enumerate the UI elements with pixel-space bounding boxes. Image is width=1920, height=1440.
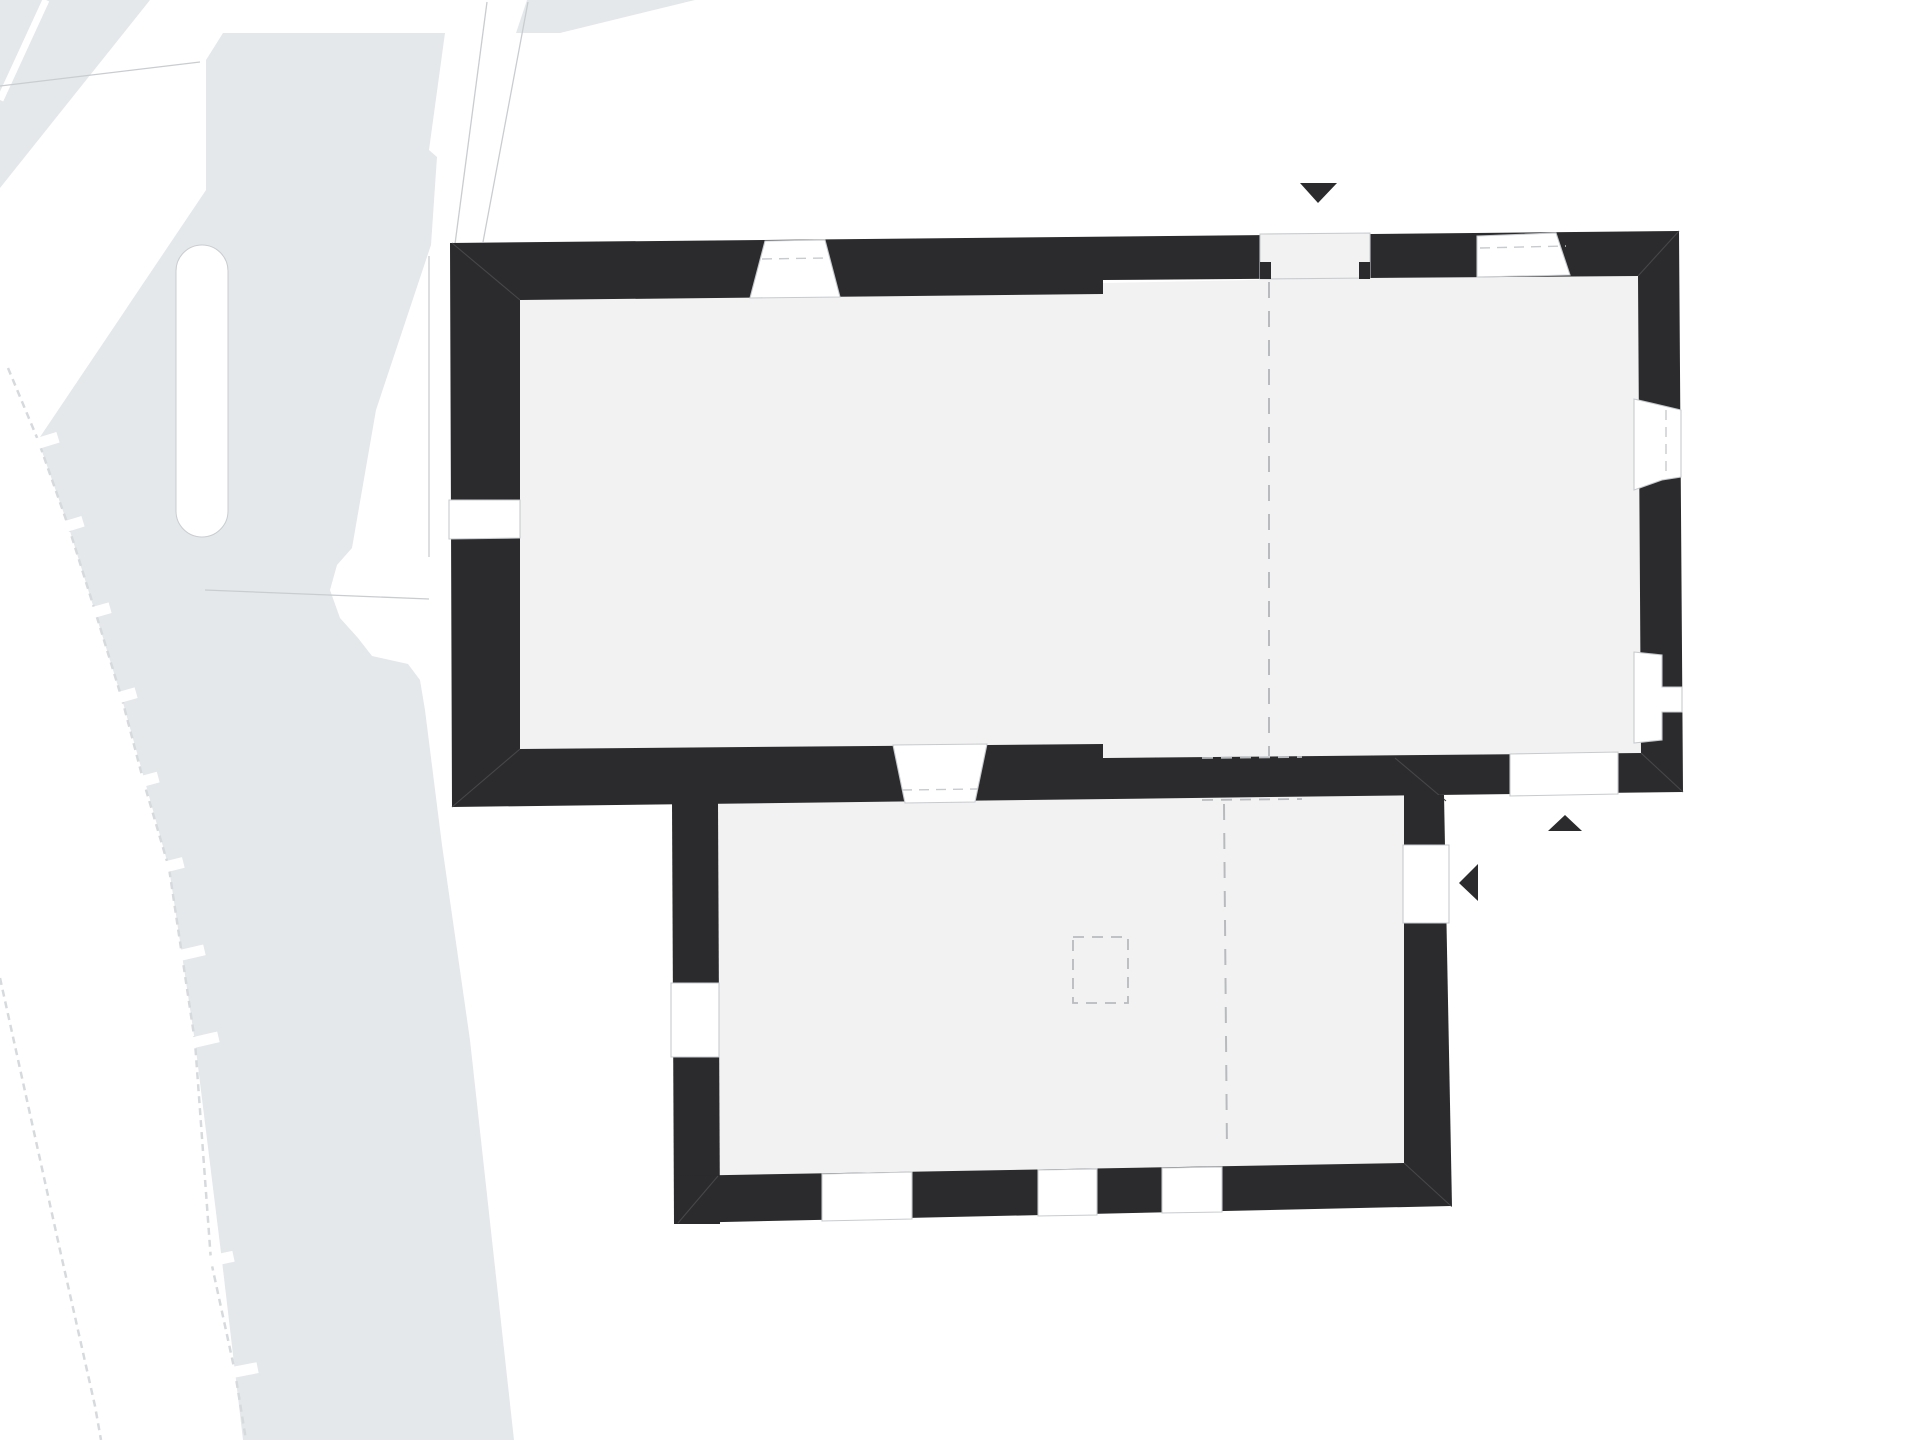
window-left xyxy=(449,500,520,539)
street-edge-line-1 xyxy=(455,2,487,244)
dead-end-lane xyxy=(176,245,228,537)
site-block-top-right-wedge xyxy=(516,0,695,33)
survey-dashed-line-far-left xyxy=(0,978,101,1440)
street-edge-line-2 xyxy=(483,2,528,242)
window-left-lower xyxy=(671,983,719,1057)
bottom-gap-2 xyxy=(1038,1169,1097,1216)
bottom-gap-3 xyxy=(1162,1167,1222,1213)
triangle-up-icon xyxy=(1548,815,1582,831)
lower-hall-floor xyxy=(714,795,1407,1180)
triangle-left-icon xyxy=(1459,864,1478,901)
bottom-gap-1 xyxy=(822,1172,912,1221)
upper-hall-floor xyxy=(515,272,1645,760)
splayed-window-top-1 xyxy=(750,240,840,298)
floor-plan-canvas xyxy=(0,0,1920,1440)
site-block-main xyxy=(38,33,514,1440)
splayed-window-top-2 xyxy=(1477,233,1570,277)
door-right-lower xyxy=(1403,845,1449,923)
door-jamb-left xyxy=(1260,262,1271,279)
entrance-door-top xyxy=(1260,233,1370,279)
door-jamb-right xyxy=(1359,262,1370,279)
triangle-down-icon xyxy=(1300,183,1337,203)
door-bottom-right xyxy=(1510,752,1618,796)
splayed-window-right-1 xyxy=(1634,399,1681,490)
splayed-window-bottom xyxy=(893,744,987,803)
